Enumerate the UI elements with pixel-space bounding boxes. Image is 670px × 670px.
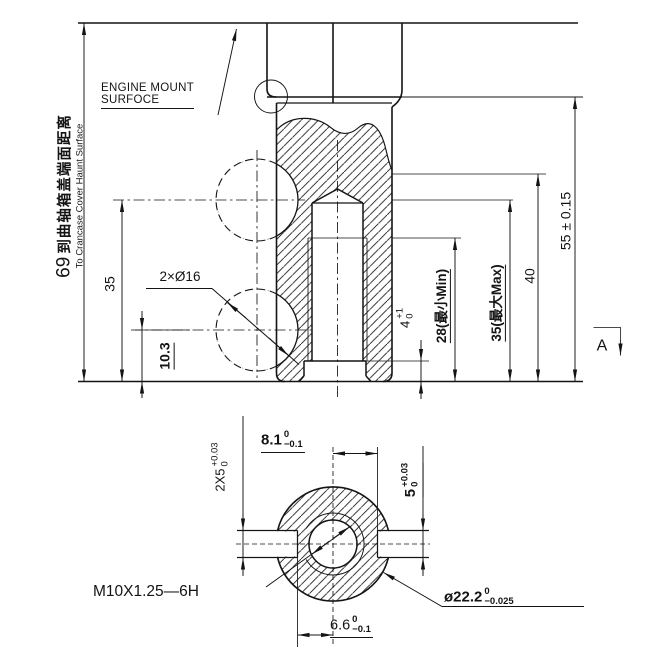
dim-4-value: 4: [397, 321, 412, 328]
dim-2x5-label: 2X5+0.030: [211, 442, 232, 491]
dim-6-6-value: 6.6: [330, 617, 350, 633]
engineering-drawing-canvas: ENGINE MOUNT SURFOCE 69到曲轴箱盖端面距离 To Cran…: [0, 0, 670, 670]
shaft-right-edge: [392, 23, 402, 107]
engine-mount-surface-label: ENGINE MOUNT SURFOCE: [101, 82, 194, 109]
section-a-label: A: [597, 339, 608, 356]
dim-8-1-label: 8.10−0.1: [261, 430, 305, 453]
dim-10-3-label: 10.3: [158, 342, 175, 369]
dim-69-chinese: 到曲轴箱盖端面距离: [58, 114, 74, 254]
engine-mount-label-line1: ENGINE MOUNT: [101, 82, 194, 94]
dim-40-label: 40: [523, 268, 538, 284]
dim-55-label: 55 ± 0.15: [559, 192, 574, 250]
top-view-extension-lines: [135, 174, 546, 361]
dim-69-label: 69到曲轴箱盖端面距离 To Crancase Cover Haunt Surf…: [55, 114, 86, 278]
dim-6-6-label: 6.60−0.1: [330, 615, 373, 638]
holes-callout-label: 2×Ø16: [160, 270, 201, 284]
shaft-left-edge: [267, 23, 277, 97]
dim-4-label: 4+10: [396, 308, 417, 328]
dim-28-label: 28(最小Min): [435, 269, 451, 343]
dim-2x5-value: 2X5: [212, 468, 227, 491]
dim-22-2-label: ø22.20−0.025: [444, 587, 514, 608]
thread-callout-label: M10X1.25—6H: [93, 584, 199, 600]
engine-mount-label-line2: SURFOCE: [101, 94, 194, 106]
engine-mount-leader: [218, 29, 237, 115]
dim-22-2-value: ø22.2: [444, 588, 482, 605]
dim-69-english: To Crancase Cover Haunt Surface: [75, 114, 85, 278]
dim-5-label: 5+0.030: [401, 463, 424, 497]
dim-5-value: 5: [402, 489, 419, 497]
dim-35-label: 35: [103, 276, 118, 292]
dim-8-1-value: 8.1: [261, 431, 282, 448]
dim-35max-label: 35(最大Max): [490, 264, 506, 341]
dim-69-value: 69: [54, 257, 75, 278]
slot-mask-left: [250, 532, 297, 557]
